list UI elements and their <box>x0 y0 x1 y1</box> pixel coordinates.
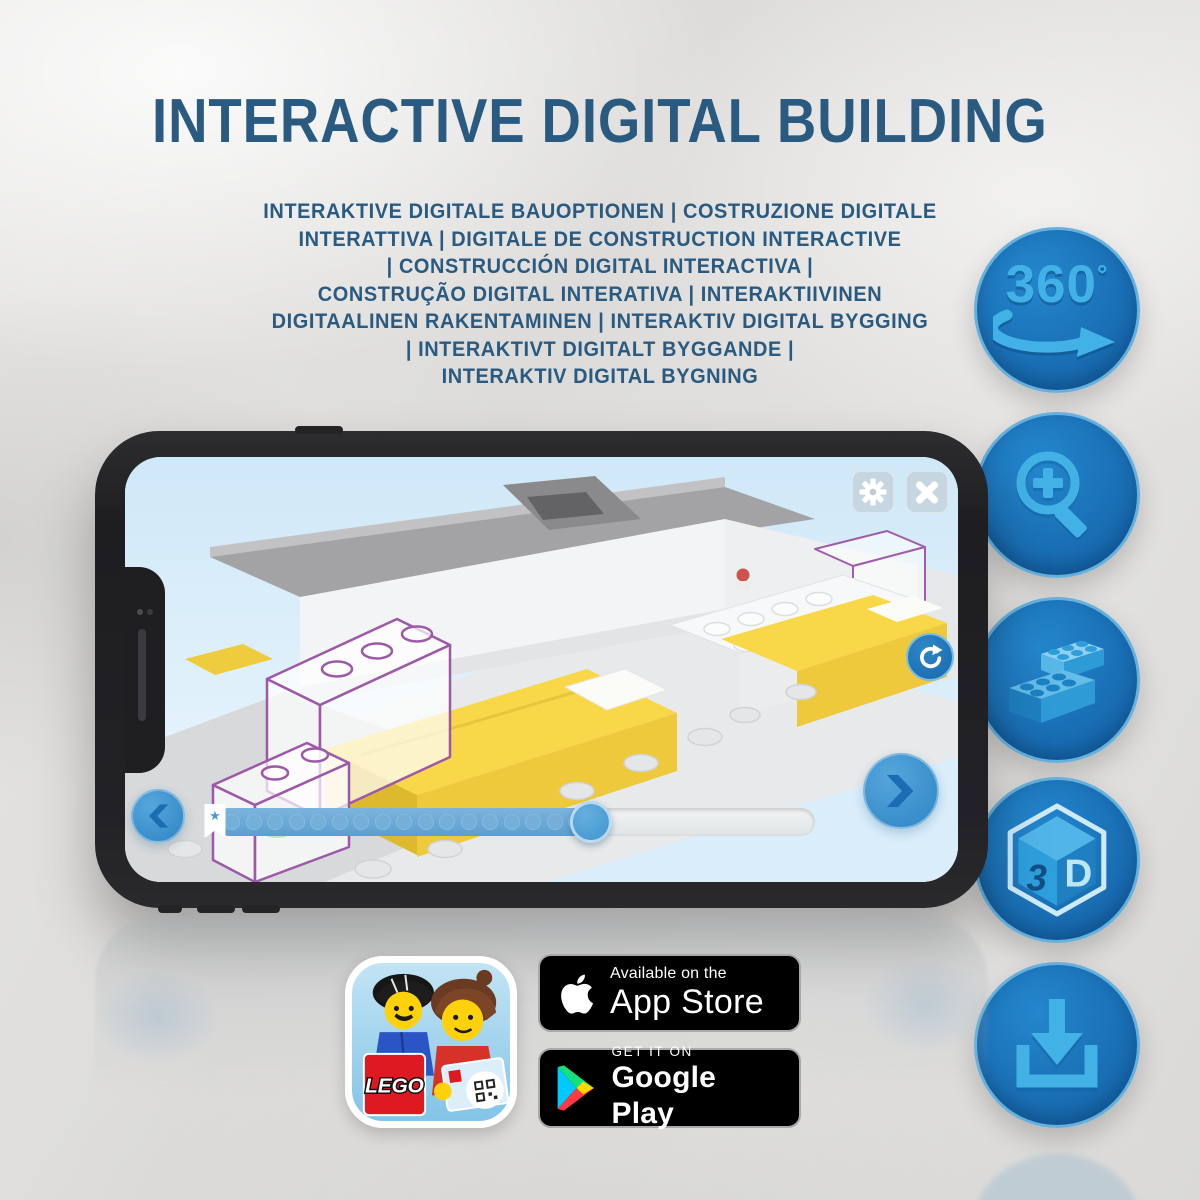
feature-download <box>974 962 1140 1128</box>
svg-text:D: D <box>1064 852 1092 895</box>
app-store-tagline: Available on the <box>610 965 764 983</box>
circle-reflection <box>974 1154 1140 1200</box>
subtitle-line: INTERAKTIV DIGITAL BYGNING <box>182 363 1018 391</box>
multilingual-subtitle: INTERAKTIVE DIGITALE BAUOPTIONEN | COSTR… <box>182 198 1018 391</box>
phone-side-button <box>295 426 343 434</box>
close-button[interactable] <box>906 471 948 513</box>
svg-text:LEGO: LEGO <box>365 1074 424 1097</box>
subtitle-line: | CONSTRUCCIÓN DIGITAL INTERACTIVA | <box>182 253 1018 281</box>
play-triangle-icon <box>554 1063 597 1113</box>
reset-rotation-button[interactable] <box>906 633 954 681</box>
phone-mockup: ★ <box>95 431 988 908</box>
svg-text:3: 3 <box>1026 858 1046 899</box>
google-play-tagline: GET IT ON <box>611 1044 785 1060</box>
subtitle-line: DIGITAALINEN RAKENTAMINEN | INTERAKTIV D… <box>182 308 1018 336</box>
settings-button[interactable] <box>852 471 894 513</box>
feature-3d-view: 3 D <box>974 777 1140 943</box>
build-progress-slider[interactable]: ★ <box>215 808 815 836</box>
lego-bricks-icon <box>1001 624 1113 736</box>
3d-cube-icon: 3 D <box>998 801 1116 919</box>
app-store-badge[interactable]: Available on the App Store <box>538 954 801 1032</box>
subtitle-line: CONSTRUÇÃO DIGITAL INTERATIVA | INTERAKT… <box>182 281 1018 309</box>
lego-app-icon[interactable]: LEGO <box>345 956 517 1128</box>
apple-icon <box>554 968 596 1018</box>
phone-side-button <box>242 905 280 913</box>
google-play-badge[interactable]: GET IT ON Google Play <box>538 1048 801 1128</box>
chevron-right-icon <box>886 773 916 809</box>
app-screen: ★ <box>125 457 958 882</box>
feature-360-rotation: 360° <box>974 227 1140 393</box>
lego-app-artwork: LEGO <box>352 963 510 1121</box>
app-store-label: App Store <box>610 983 764 1021</box>
rotate-reset-icon <box>915 642 945 672</box>
speaker-slot <box>138 629 146 721</box>
gear-icon <box>858 477 888 507</box>
google-play-label: Google Play <box>611 1060 785 1132</box>
feature-zoom <box>974 412 1140 578</box>
chevron-left-icon <box>147 803 169 829</box>
slider-fill <box>215 808 593 836</box>
subtitle-line: | INTERAKTIVT DIGITALT BYGGANDE | <box>182 336 1018 364</box>
previous-step-button[interactable] <box>131 789 185 843</box>
next-step-button[interactable] <box>863 753 939 829</box>
subtitle-line: INTERAKTIVE DIGITALE BAUOPTIONEN | COSTR… <box>182 198 1018 226</box>
promo-graphic: INTERACTIVE DIGITAL BUILDING INTERAKTIVE… <box>0 0 1200 1200</box>
magnifier-plus-icon <box>1004 442 1110 548</box>
slider-thumb[interactable] <box>570 801 612 843</box>
page-title: INTERACTIVE DIGITAL BUILDING <box>0 86 1200 157</box>
subtitle-line: INTERATTIVA | DIGITALE DE CONSTRUCTION I… <box>182 226 1018 254</box>
phone-side-button <box>197 905 235 913</box>
rotation-arrow <box>993 307 1121 357</box>
360-rotate-icon: 360° <box>1006 263 1109 307</box>
phone-notch <box>125 567 165 773</box>
download-icon <box>1003 991 1111 1099</box>
feature-brick-building <box>974 597 1140 763</box>
camera-icon <box>137 609 143 615</box>
phone-side-button <box>158 905 182 913</box>
